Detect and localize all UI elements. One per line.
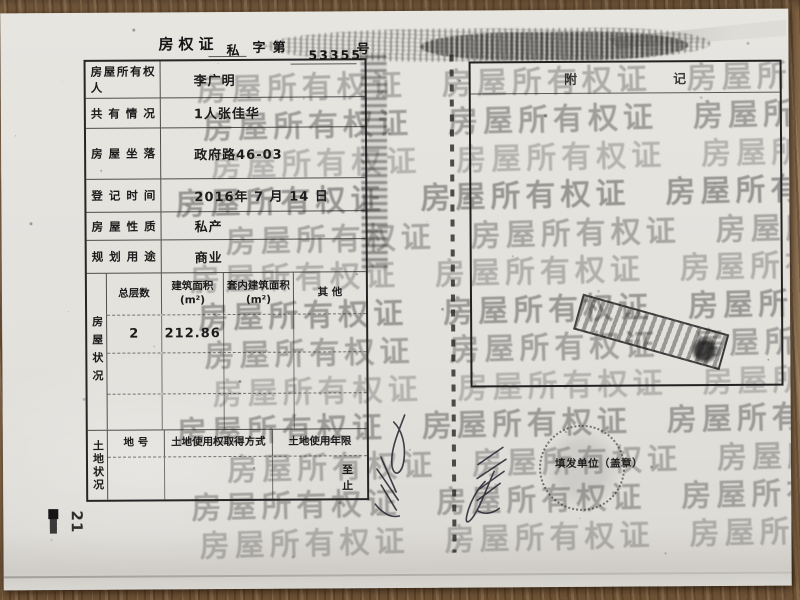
handwritten-signatures — [0, 9, 792, 591]
photo-of-property-certificate: 房屋所有权证 房屋所有权证 房屋所有权证 房屋所有权证 房屋所有权证 房屋所有权… — [0, 0, 800, 600]
stamps-layer: 填发单位（盖章） — [0, 9, 792, 591]
certificate-paper: 房屋所有权证 房屋所有权证 房屋所有权证 房屋所有权证 房屋所有权证 房屋所有权… — [0, 9, 792, 591]
